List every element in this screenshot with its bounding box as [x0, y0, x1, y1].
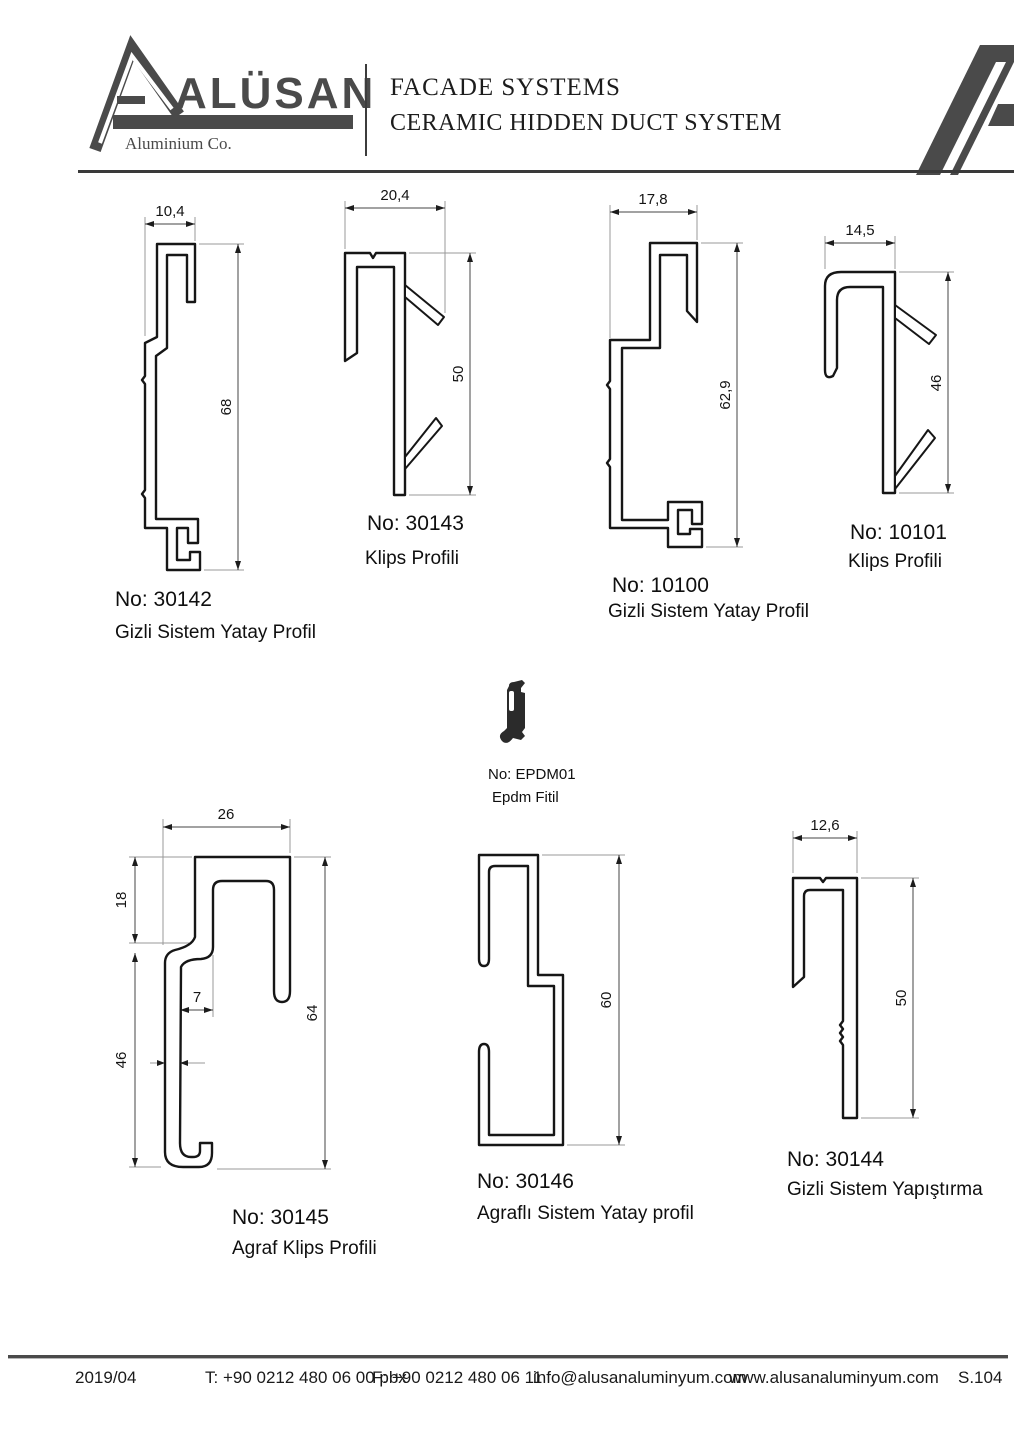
epdm-gasket-shape — [500, 680, 525, 743]
label-no-30146: No: 30146 — [477, 1170, 574, 1194]
header-rule — [78, 170, 1014, 173]
label-no-10101: No: 10101 — [850, 521, 947, 545]
epdm-gasket-drawing — [495, 678, 540, 753]
label-no-30143: No: 30143 — [367, 512, 464, 536]
dim-height-value: 62,9 — [717, 380, 734, 409]
profile-10100-outline — [607, 243, 702, 547]
footer-email: info@alusanaluminyum.com — [533, 1368, 747, 1388]
dim-height-value: 50 — [893, 990, 910, 1007]
profile-30143-outline — [345, 253, 405, 495]
dim-height-30142: 68 — [199, 244, 244, 570]
profile-10101-outline — [825, 272, 895, 493]
footer-rule — [8, 1355, 1008, 1359]
label-no-epdm01: No: EPDM01 — [488, 766, 576, 783]
profile-30143-drawing: 20,4 50 — [330, 185, 490, 525]
dim-7-value: 7 — [193, 989, 201, 1006]
footer-date: 2019/04 — [75, 1368, 136, 1388]
profile-30142-drawing: 10,4 68 — [110, 190, 260, 585]
brand-subtitle: Aluminium Co. — [125, 134, 232, 153]
dim-46-30145: 46 — [113, 953, 161, 1167]
page-title-line2: CERAMIC HIDDEN DUCT SYSTEM — [390, 110, 782, 137]
profile-30144-outline — [793, 878, 857, 1118]
dim-width-value: 12,6 — [810, 817, 839, 834]
profile-30145-outline — [165, 857, 290, 1167]
dim-width-30144: 12,6 — [793, 817, 857, 873]
dim-7-30145: 7 — [180, 955, 213, 1017]
profile-30143-fin-bottom — [405, 418, 442, 469]
dim-width-value: 10,4 — [155, 203, 184, 220]
profile-30142-outline — [142, 244, 200, 570]
label-no-30145: No: 30145 — [232, 1206, 329, 1230]
label-name-epdm01: Epdm Fitil — [492, 789, 559, 806]
dim-height-30144: 50 — [861, 878, 919, 1118]
partial-logo-crossbar — [988, 104, 1014, 126]
company-logo: ALÜSAN Aluminium Co. — [75, 38, 360, 163]
dim-height-value: 50 — [450, 366, 467, 383]
label-no-10100: No: 10100 — [612, 574, 709, 598]
label-name-30146: Agraflı Sistem Yatay profil — [477, 1203, 694, 1225]
label-name-30143: Klips Profili — [365, 548, 459, 570]
profile-10101-drawing: 14,5 46 — [795, 220, 980, 540]
profile-30146-drawing: 60 — [465, 845, 630, 1175]
dim-width-10101: 14,5 — [825, 222, 895, 269]
dim-height-value: 68 — [218, 399, 235, 416]
brand-text: ALÜSAN — [175, 69, 376, 118]
label-name-30144: Gizli Sistem Yapıştırma — [787, 1179, 983, 1201]
footer-website: www.alusanaluminyum.com — [729, 1368, 939, 1388]
footer-page-number: S.104 — [958, 1368, 1002, 1388]
label-name-30142: Gizli Sistem Yatay Profil — [115, 622, 316, 644]
dim-width-value: 20,4 — [380, 187, 409, 204]
label-name-10100: Gizli Sistem Yatay Profil — [608, 601, 809, 623]
partial-logo-right — [900, 28, 1014, 175]
profile-30143-fin-top — [405, 285, 444, 325]
dim-height-30143: 50 — [409, 253, 476, 495]
profile-10101-fin-top — [895, 305, 936, 344]
profile-10100-drawing: 17,8 62,9 — [585, 195, 765, 555]
catalog-page: ALÜSAN Aluminium Co. FACADE SYSTEMS CERA… — [0, 0, 1014, 1433]
profile-30145-drawing: 26 18 46 7 3 — [95, 805, 350, 1185]
footer-fax: F: +90 0212 480 06 11 — [372, 1368, 542, 1388]
dim-height-value: 60 — [598, 992, 615, 1009]
label-no-30142: No: 30142 — [115, 588, 212, 612]
label-name-30145: Agraf Klips Profili — [232, 1238, 377, 1260]
header-divider — [365, 64, 367, 156]
profile-10101-fin-bottom — [895, 430, 935, 489]
profile-30144-drawing: 12,6 50 — [770, 815, 980, 1145]
dim-46-value: 46 — [113, 1052, 130, 1069]
label-no-30144: No: 30144 — [787, 1148, 884, 1172]
dim-18-30145: 18 — [113, 857, 192, 943]
dim-height-value: 46 — [928, 375, 945, 392]
profile-30146-outline — [479, 855, 563, 1145]
dim-height-10100: 62,9 — [701, 243, 743, 547]
dim-18-value: 18 — [113, 892, 130, 909]
dim-height-value: 64 — [304, 1005, 321, 1022]
dim-width-value: 17,8 — [638, 191, 667, 208]
label-name-10101: Klips Profili — [848, 551, 942, 573]
epdm-gasket-slot — [509, 691, 514, 711]
dim-width-value: 26 — [218, 806, 235, 823]
page-title-line1: FACADE SYSTEMS — [390, 74, 621, 102]
dim-width-value: 14,5 — [845, 222, 874, 239]
